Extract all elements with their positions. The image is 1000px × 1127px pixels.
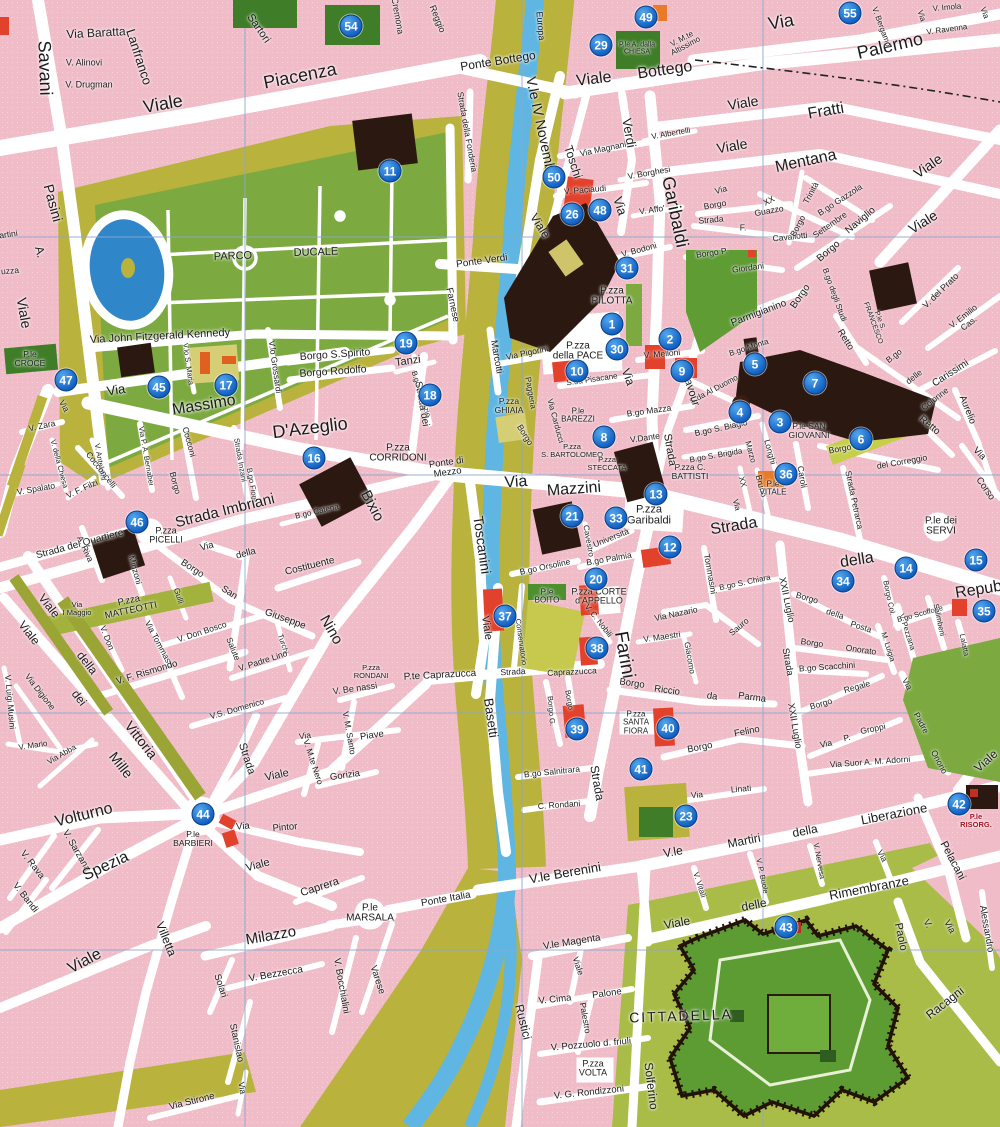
poi-marker-7[interactable]: 7 [804,372,827,395]
poi-marker-23[interactable]: 23 [675,805,698,828]
poi-marker-10[interactable]: 10 [566,360,589,383]
poi-marker-19[interactable]: 19 [395,332,418,355]
poi-marker-42[interactable]: 42 [948,793,971,816]
poi-marker-5[interactable]: 5 [744,353,767,376]
poi-marker-8[interactable]: 8 [593,426,616,449]
poi-marker-33[interactable]: 33 [605,507,628,530]
poi-marker-47[interactable]: 47 [55,369,78,392]
poi-marker-13[interactable]: 13 [645,483,668,506]
poi-marker-21[interactable]: 21 [561,505,584,528]
poi-marker-37[interactable]: 37 [494,605,517,628]
poi-marker-36[interactable]: 36 [775,463,798,486]
poi-marker-15[interactable]: 15 [965,549,988,572]
pond-island [121,258,135,278]
poi-marker-17[interactable]: 17 [215,374,238,397]
poi-marker-41[interactable]: 41 [630,758,653,781]
poi-marker-40[interactable]: 40 [657,717,680,740]
poi-marker-9[interactable]: 9 [671,360,694,383]
poi-marker-55[interactable]: 55 [839,2,862,25]
poi-marker-20[interactable]: 20 [585,568,608,591]
poi-marker-2[interactable]: 2 [659,328,682,351]
poi-marker-45[interactable]: 45 [148,376,171,399]
poi-marker-43[interactable]: 43 [775,916,798,939]
poi-marker-39[interactable]: 39 [566,718,589,741]
poi-marker-54[interactable]: 54 [340,15,363,38]
poi-marker-26[interactable]: 26 [561,203,584,226]
poi-marker-6[interactable]: 6 [850,428,873,451]
poi-marker-48[interactable]: 48 [589,199,612,222]
cittadella-fortress [670,920,908,1116]
poi-marker-49[interactable]: 49 [635,6,658,29]
poi-marker-11[interactable]: 11 [379,160,402,183]
poi-marker-29[interactable]: 29 [590,34,613,57]
poi-marker-12[interactable]: 12 [659,536,682,559]
poi-marker-44[interactable]: 44 [192,803,215,826]
poi-marker-50[interactable]: 50 [543,166,566,189]
poi-marker-3[interactable]: 3 [769,411,792,434]
poi-marker-34[interactable]: 34 [832,570,855,593]
poi-marker-4[interactable]: 4 [729,401,752,424]
poi-marker-31[interactable]: 31 [616,257,639,280]
poi-marker-38[interactable]: 38 [586,637,609,660]
poi-marker-14[interactable]: 14 [895,557,918,580]
parma-map: SavaniVia BarattaV. AlinoviV. DrugmanLan… [0,0,1000,1127]
poi-marker-46[interactable]: 46 [126,511,149,534]
poi-marker-16[interactable]: 16 [303,447,326,470]
poi-marker-18[interactable]: 18 [419,384,442,407]
poi-marker-1[interactable]: 1 [601,313,624,336]
poi-marker-30[interactable]: 30 [606,338,629,361]
map-base-art [0,0,1000,1127]
poi-marker-35[interactable]: 35 [973,600,996,623]
